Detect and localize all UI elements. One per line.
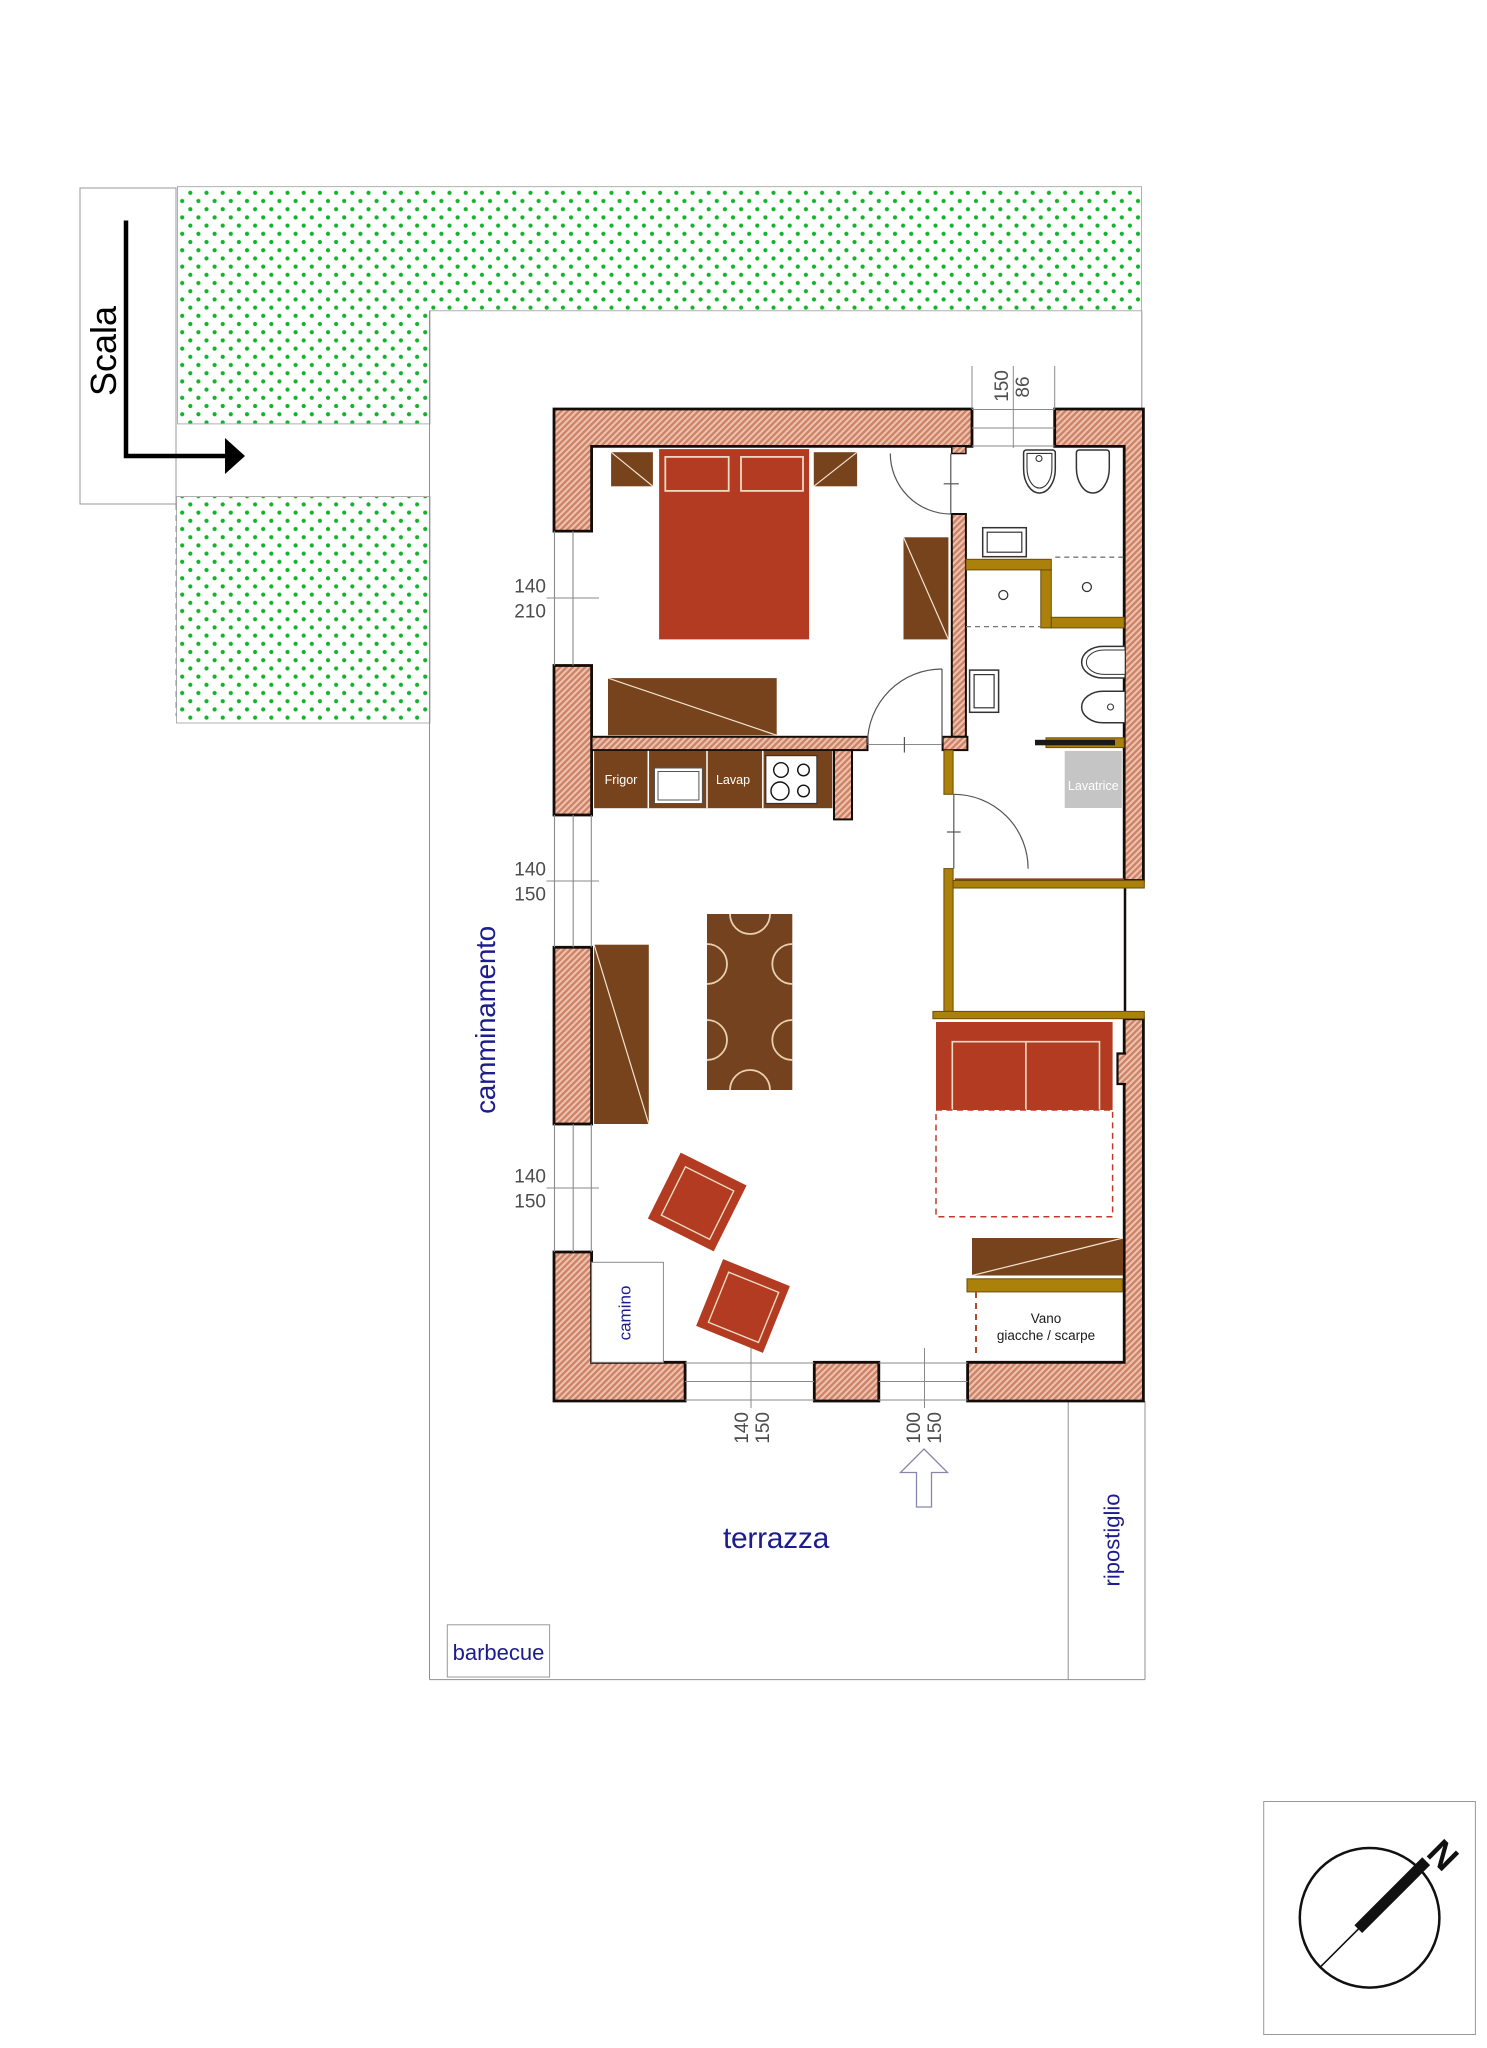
svg-text:140: 140: [514, 860, 546, 881]
svg-text:Scala: Scala: [83, 305, 124, 396]
svg-text:camino: camino: [616, 1286, 635, 1341]
svg-text:barbecue: barbecue: [453, 1640, 545, 1665]
svg-text:100: 100: [904, 1412, 925, 1444]
svg-text:140: 140: [514, 1167, 546, 1188]
svg-text:150: 150: [514, 1192, 546, 1213]
svg-text:giacche / scarpe: giacche / scarpe: [997, 1328, 1095, 1343]
svg-text:ripostiglio: ripostiglio: [1100, 1494, 1125, 1587]
svg-text:150: 150: [992, 370, 1013, 402]
svg-text:Frigor: Frigor: [605, 773, 638, 787]
svg-text:140: 140: [732, 1412, 753, 1444]
svg-text:camminamento: camminamento: [470, 926, 501, 1114]
svg-text:150: 150: [753, 1412, 774, 1444]
svg-text:terrazza: terrazza: [723, 1522, 830, 1555]
svg-text:150: 150: [925, 1412, 946, 1444]
svg-text:86: 86: [1013, 376, 1034, 397]
svg-text:140: 140: [514, 577, 546, 598]
svg-text:Lavap: Lavap: [716, 773, 750, 787]
svg-text:150: 150: [514, 885, 546, 906]
svg-text:Lavatrice: Lavatrice: [1068, 779, 1119, 793]
svg-text:Vano: Vano: [1031, 1311, 1062, 1326]
svg-text:210: 210: [514, 602, 546, 623]
